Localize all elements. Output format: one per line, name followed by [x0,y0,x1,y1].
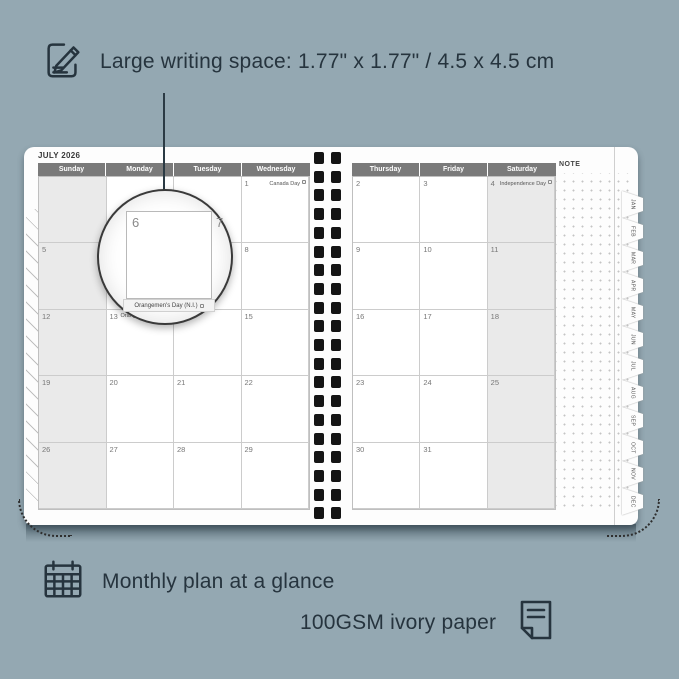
date-number: 26 [42,445,50,454]
calendar-cell-4: 4Independence Day [488,177,555,243]
calendar-cell-31: 31 [420,443,487,509]
holiday-box-icon [302,180,306,184]
calendar-cell-12: 12 [39,310,107,376]
day-header-thursday: Thursday [352,163,420,176]
month-tab-label: OCT [630,442,636,454]
spiral-hole [314,208,324,220]
calendar-cell-24: 24 [420,376,487,442]
calendar-cell-11: 11 [488,243,555,309]
calendar-cell-empty [39,177,107,243]
month-tab-label: MAR [630,252,636,264]
feature-paper-label: 100GSM ivory paper [300,611,496,635]
date-number: 25 [491,378,499,387]
date-number: 22 [245,378,253,387]
spiral-hole [331,414,341,426]
spiral-hole [331,171,341,183]
date-number: 9 [356,245,360,254]
left-day-header-row: SundayMondayTuesdayWednesday [38,163,310,176]
feature-monthly-plan-label: Monthly plan at a glance [102,570,334,594]
date-number: 18 [491,312,499,321]
spiral-hole [314,433,324,445]
date-number: 19 [42,378,50,387]
month-tab-label: SEP [630,415,636,426]
magnified-day-7: 7 [216,215,223,230]
calendar-cell-17: 17 [420,310,487,376]
holiday-box-icon [548,180,552,184]
date-number: 30 [356,445,364,454]
date-number: 29 [245,445,253,454]
spiral-hole [314,302,324,314]
feature-writing-space: Large writing space: 1.77" x 1.77" / 4.5… [40,36,554,87]
date-number: 21 [177,378,185,387]
day-header-friday: Friday [420,163,488,176]
planner-spread: JULY 2026 SundayMondayTuesdayWednesday 1… [24,147,638,525]
date-number: 13 [110,312,118,321]
spiral-hole [331,339,341,351]
magnified-day-6: 6 [132,215,139,230]
calendar-cell-28: 28 [174,443,242,509]
magnifier-circle: 6 7 Orangemen's Day (N.I.) [97,189,233,325]
spiral-hole [314,246,324,258]
pencil-note-icon [40,36,86,87]
spiral-hole [314,339,324,351]
date-number: 27 [110,445,118,454]
month-tab-oct: OCT [622,434,643,461]
calendar-cell-23: 23 [353,376,420,442]
date-number: 11 [491,245,499,254]
date-number: 12 [42,312,50,321]
spiral-hole [331,376,341,388]
date-number: 1 [245,179,249,188]
month-tab-mar: MAR [622,245,643,272]
month-tab-feb: FEB [622,218,643,245]
calendar-cell-16: 16 [353,310,420,376]
spiral-hole [331,489,341,501]
note-dot-grid [556,173,630,511]
month-tab-nov: NOV [622,461,643,488]
note-label: NOTE [559,161,580,168]
spiral-hole [314,507,324,519]
month-tabs: JANFEBMARAPRMAYJUNJULAUGSEPOCTNOVDEC [622,147,644,525]
spiral-hole [314,358,324,370]
spiral-hole [314,470,324,482]
month-tab-label: APR [630,280,636,291]
calendar-cell-22: 22 [242,376,310,442]
spiral-hole [314,189,324,201]
date-number: 4 [491,179,495,188]
spiral-hole [331,208,341,220]
calendar-cell-29: 29 [242,443,310,509]
date-number: 24 [423,378,431,387]
spiral-hole [314,171,324,183]
month-tab-label: AUG [630,387,636,399]
date-number: 2 [356,179,360,188]
spiral-hole [331,433,341,445]
right-calendar-grid: 234Independence Day910111617182324253031 [352,176,556,510]
date-number: 28 [177,445,185,454]
day-header-tuesday: Tuesday [174,163,242,176]
spiral-hole [331,227,341,239]
spiral-hole [331,395,341,407]
date-number: 31 [423,445,431,454]
month-tab-label: NOV [630,468,636,480]
month-tab-sep: SEP [622,407,643,434]
month-tab-label: JAN [630,199,636,210]
spiral-hole [331,246,341,258]
spiral-hole [331,320,341,332]
calendar-cell-25: 25 [488,376,555,442]
date-number: 23 [356,378,364,387]
spiral-hole [314,376,324,388]
month-tab-jan: JAN [622,191,643,218]
month-tab-label: FEB [630,226,636,237]
calendar-cell-3: 3 [420,177,487,243]
spiral-hole [314,320,324,332]
magnified-holiday: Orangemen's Day (N.I.) [123,299,215,312]
feature-writing-space-label: Large writing space: 1.77" x 1.77" / 4.5… [100,50,554,74]
calendar-grid-icon [40,556,86,607]
month-tab-jul: JUL [622,353,643,380]
spiral-hole [331,358,341,370]
date-number: 5 [42,245,46,254]
month-tab-label: JUN [630,334,636,345]
spiral-hole [314,283,324,295]
calendar-cell-19: 19 [39,376,107,442]
calendar-cell-2: 2 [353,177,420,243]
date-number: 16 [356,312,364,321]
month-tab-label: JUL [630,361,636,371]
right-day-header-row: ThursdayFridaySaturday [352,163,556,176]
month-tab-may: MAY [622,299,643,326]
holiday-label: Canada Day [269,180,306,187]
calendar-cell-20: 20 [107,376,175,442]
spiral-hole [331,470,341,482]
spiral-hole [314,414,324,426]
spiral-hole [331,283,341,295]
calendar-cell-18: 18 [488,310,555,376]
calendar-cell-21: 21 [174,376,242,442]
calendar-cell-8: 8 [242,243,310,309]
stitch-arc-right [606,499,660,537]
date-number: 17 [423,312,431,321]
month-tab-label: MAY [630,307,636,319]
spiral-binding [310,147,348,525]
callout-line [163,93,165,190]
spiral-hole [314,489,324,501]
calendar-cell-10: 10 [420,243,487,309]
date-number: 15 [245,312,253,321]
calendar-cell-empty [488,443,555,509]
planner-shadow [26,524,636,542]
calendar-cell-27: 27 [107,443,175,509]
spiral-hole [331,302,341,314]
spiral-hole [331,152,341,164]
day-header-saturday: Saturday [488,163,556,176]
spiral-hole [331,451,341,463]
month-title: JULY 2026 [38,151,80,160]
date-number: 3 [423,179,427,188]
day-header-wednesday: Wednesday [242,163,310,176]
holiday-box-icon [200,304,204,308]
date-number: 8 [245,245,249,254]
month-tab-aug: AUG [622,380,643,407]
calendar-cell-15: 15 [242,310,310,376]
spiral-hole [314,227,324,239]
spiral-hole [331,264,341,276]
month-tab-jun: JUN [622,326,643,353]
spiral-hole [314,451,324,463]
date-number: 20 [110,378,118,387]
calendar-cell-1: 1Canada Day [242,177,310,243]
feature-monthly-plan: Monthly plan at a glance [40,556,334,607]
holiday-label: Independence Day [500,180,552,187]
date-number: 10 [423,245,431,254]
month-tab-apr: APR [622,272,643,299]
spiral-hole [331,189,341,201]
feature-paper: 100GSM ivory paper [300,596,558,649]
calendar-cell-30: 30 [353,443,420,509]
spiral-hole [314,395,324,407]
day-header-sunday: Sunday [38,163,106,176]
paper-sheet-icon [510,596,558,649]
spiral-hole [331,507,341,519]
spiral-hole [314,264,324,276]
spiral-hole [314,152,324,164]
calendar-cell-9: 9 [353,243,420,309]
